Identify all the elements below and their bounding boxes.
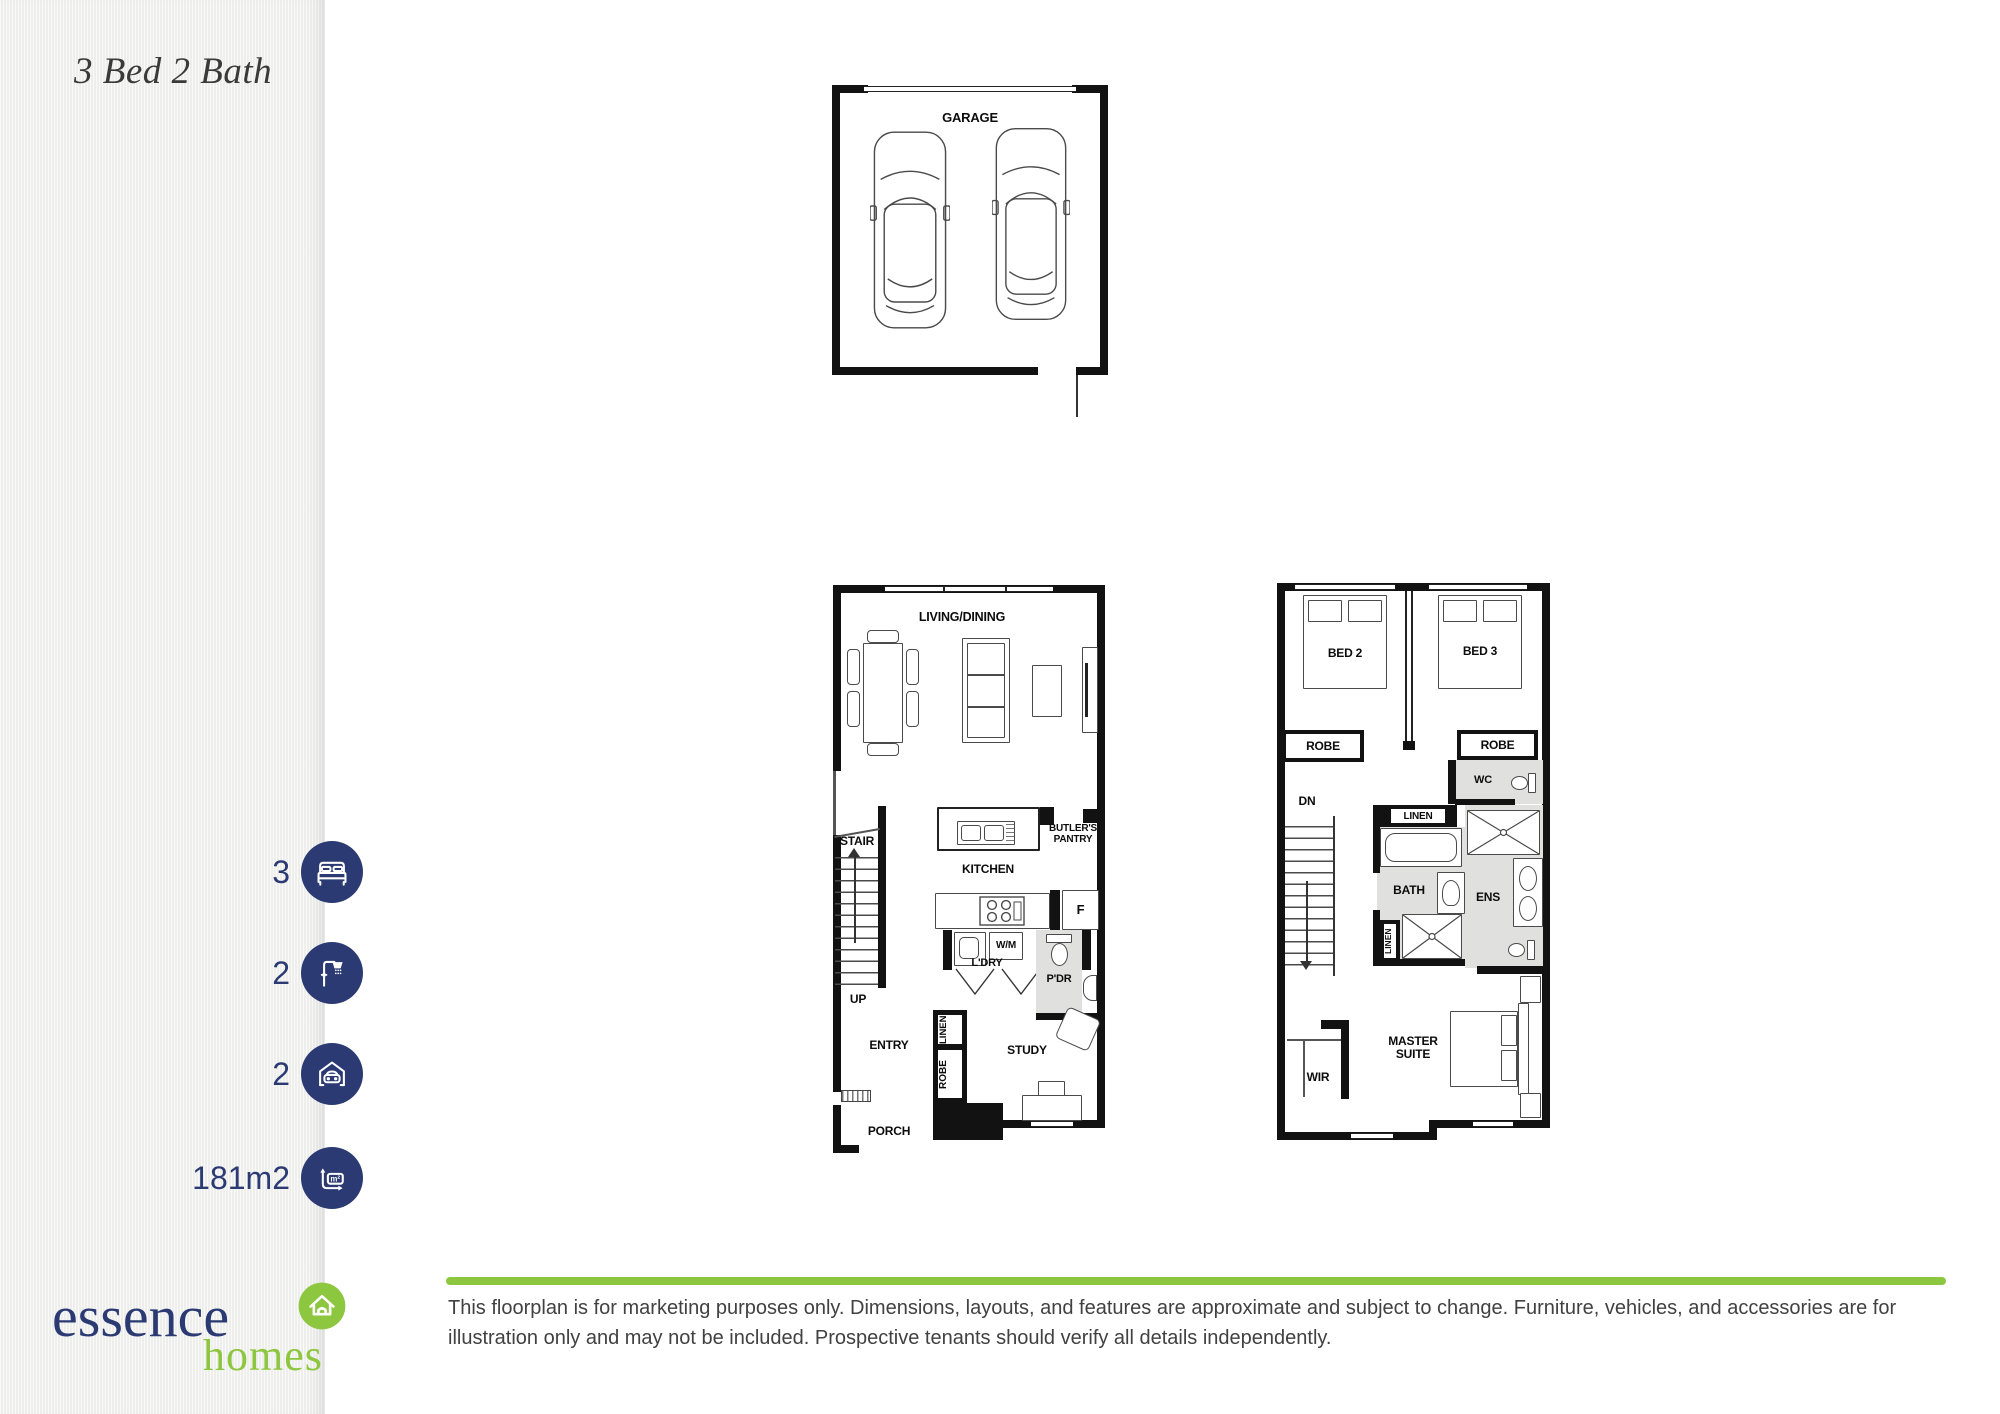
desk [1022, 1095, 1082, 1121]
car-top-view [870, 127, 950, 333]
closet-label-linen-top: LINEN [1390, 811, 1446, 822]
label-dn: DN [1289, 795, 1325, 808]
plan-detail [1005, 586, 1007, 592]
wall [833, 585, 841, 771]
plan-detail [1467, 810, 1540, 855]
stat-bathrooms: 2 [0, 942, 380, 1004]
toilet-tank [1527, 940, 1535, 960]
plan-detail [1001, 968, 1041, 996]
bed-icon [301, 841, 363, 903]
closet-label-linen-side: LINEN [1383, 923, 1397, 959]
room-label-bed2: BED 2 [1305, 647, 1385, 660]
plan-detail [870, 127, 950, 333]
wall [1341, 1026, 1349, 1099]
window [1429, 584, 1527, 590]
divider-bar [446, 1277, 1946, 1285]
basin [1519, 896, 1537, 921]
stair-treads [835, 847, 878, 987]
dining-chair [847, 649, 860, 685]
car-count: 2 [110, 1043, 290, 1105]
page-title: 3 Bed 2 Bath [74, 50, 272, 93]
plan-detail: m² [313, 1159, 351, 1197]
furniture-outline [1385, 833, 1457, 862]
room-label-porch: PORCH [858, 1125, 920, 1138]
wall [1477, 966, 1543, 974]
pillow [1308, 600, 1342, 622]
shower-screen [1467, 810, 1540, 855]
plan-detail [833, 771, 836, 835]
closet-label-robe: ROBE [938, 1053, 962, 1097]
wall [833, 1145, 859, 1153]
closet-label-linen: LINEN [938, 1015, 962, 1045]
plan-detail [1333, 816, 1335, 976]
upper-floorplan: BED 2 BED 3 ROBE ROBE WC DN LINEN BATH E… [1277, 583, 1550, 1143]
house-icon [297, 1281, 347, 1331]
wall [1403, 741, 1415, 750]
plan-detail [297, 1281, 347, 1331]
room-label-pdr: P'DR [1036, 974, 1082, 985]
furniture-outline [961, 825, 981, 841]
room-label-wc: WC [1463, 775, 1503, 786]
door-swing [955, 968, 995, 996]
ground-floorplan: STAIR UP LIVING/DINING KITCHEN BUTLER'S … [833, 585, 1105, 1163]
coffee-table [1032, 665, 1062, 717]
basin [1442, 880, 1460, 906]
room-label-butlers-pantry: BUTLER'S PANTRY [1045, 823, 1101, 845]
furniture-outline [959, 937, 979, 959]
shower-icon [301, 942, 363, 1004]
shower-screen [1402, 914, 1462, 959]
bedside-table [1520, 976, 1541, 1003]
cooktop [979, 896, 1025, 926]
svg-text:m²: m² [330, 1174, 340, 1183]
plan-detail [1405, 591, 1407, 749]
toilet-tank [1046, 934, 1072, 943]
plan-detail [313, 853, 351, 891]
area-icon: m² [301, 1147, 363, 1209]
room-label-living-dining: LIVING/DINING [887, 611, 1037, 624]
dining-table [863, 643, 903, 743]
room-label-study: STUDY [997, 1044, 1057, 1057]
monitor [1038, 1081, 1065, 1096]
wall [1448, 760, 1456, 804]
garage-door [864, 86, 1076, 92]
bedside-table [1520, 1093, 1541, 1118]
plan-detail [1076, 375, 1078, 417]
wall [1100, 85, 1108, 375]
garage-floorplan: GARAGE [832, 85, 1108, 417]
plan-detail [313, 954, 351, 992]
plan-detail [979, 896, 1025, 926]
plan-detail [1303, 1041, 1305, 1097]
plan-detail [1287, 1039, 1341, 1041]
label-up: UP [843, 993, 873, 1006]
pillow [1483, 600, 1517, 622]
toilet-bowl [1051, 943, 1068, 966]
furniture-outline [984, 825, 1004, 841]
floorplan-page: { "sidebar": { "title": "3 Bed 2 Bath", … [0, 0, 2000, 1414]
room-label-master-suite: MASTER SUITE [1375, 1035, 1451, 1061]
stat-garage: 2 [0, 1043, 380, 1105]
room-label-bed3: BED 3 [1440, 645, 1520, 658]
window [1031, 1121, 1073, 1127]
tv [1085, 663, 1088, 717]
dining-chair [847, 691, 860, 727]
plan-detail [943, 586, 945, 592]
logo-sub: homes [203, 1330, 323, 1381]
toilet-tank [1528, 773, 1536, 793]
plan-detail [1006, 824, 1014, 842]
label-fridge: F [1062, 903, 1099, 916]
toilet-bowl [1508, 943, 1525, 957]
door-swing [1001, 968, 1041, 996]
basin [1519, 866, 1537, 891]
wall [832, 367, 1038, 375]
car-garage-icon [301, 1043, 363, 1105]
plan-detail [1300, 961, 1312, 970]
dining-chair [867, 743, 899, 756]
window [1295, 584, 1395, 590]
plan-detail [992, 121, 1070, 327]
room-label-stair: STAIR [835, 835, 879, 848]
wall [1373, 805, 1380, 873]
area-value: 181m2 [110, 1147, 290, 1209]
closet-label-robe-right: ROBE [1457, 739, 1538, 752]
plan-detail [1402, 914, 1462, 959]
window [1473, 1121, 1513, 1127]
wall [1076, 367, 1108, 375]
closet-label-robe-left: ROBE [1282, 740, 1364, 753]
pillow [1443, 600, 1477, 622]
basin [1083, 975, 1097, 1001]
wall [1429, 1120, 1437, 1140]
sofa-cushions [967, 643, 1005, 738]
wall [1083, 809, 1098, 823]
room-label-bath: BATH [1383, 884, 1435, 897]
stair-treads [1285, 816, 1333, 974]
toilet-bowl [1511, 776, 1528, 790]
bedroom-count: 3 [110, 841, 290, 903]
plan-detail [1306, 881, 1308, 963]
car-top-view [992, 121, 1070, 327]
bathroom-count: 2 [110, 942, 290, 1004]
window [1351, 1133, 1393, 1139]
room-label-entry: ENTRY [858, 1039, 920, 1052]
wall [1277, 583, 1285, 1140]
wall [878, 806, 886, 988]
stat-area: 181m2 m² [0, 1147, 380, 1209]
plan-detail [955, 968, 995, 996]
plan-detail [1411, 591, 1413, 749]
dining-chair [906, 691, 919, 727]
plan-detail [967, 706, 1005, 708]
wall [1542, 583, 1550, 1128]
wall [1097, 585, 1105, 1128]
wall [1082, 930, 1091, 970]
plan-detail [313, 1055, 351, 1093]
dining-chair [906, 649, 919, 685]
room-label-wir: WIR [1295, 1071, 1341, 1084]
pillow [1501, 1050, 1517, 1081]
wall [933, 1103, 1003, 1140]
wall [832, 85, 840, 375]
pillow [1348, 600, 1382, 622]
pillow [1501, 1015, 1517, 1046]
plan-detail [967, 674, 1005, 676]
wall [943, 930, 952, 970]
sidebar: 3 Bed 2 Bath 3 2 [0, 0, 325, 1414]
plan-detail [848, 848, 860, 857]
wall [1050, 890, 1060, 932]
wall [1373, 910, 1380, 966]
dining-chair [867, 630, 899, 643]
stat-bedrooms: 3 [0, 841, 380, 903]
entry-door [841, 1090, 871, 1102]
room-label-ens: ENS [1463, 891, 1513, 904]
bed-headboard [1518, 1003, 1529, 1095]
label-wm: W/M [989, 940, 1023, 951]
plan-detail [854, 857, 856, 943]
window [885, 586, 1053, 592]
disclaimer-text: This floorplan is for marketing purposes… [448, 1293, 1953, 1353]
room-label-kitchen: KITCHEN [948, 863, 1028, 876]
